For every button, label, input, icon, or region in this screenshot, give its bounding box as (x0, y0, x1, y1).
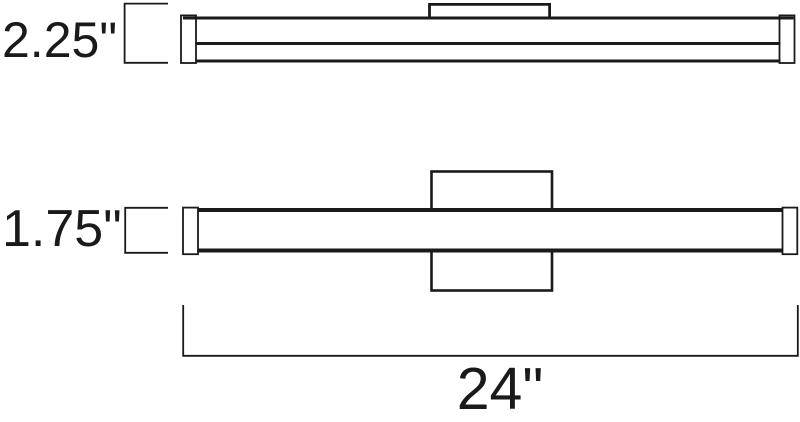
side-height-label: 2.25" (2, 15, 117, 65)
side-view-left-endcap (181, 15, 196, 63)
front-view-bar-body (197, 208, 783, 252)
front-height-dimension-bracket (125, 208, 168, 253)
side-view (181, 4, 795, 63)
front-view-right-endcap (783, 208, 798, 255)
side-view-mounting-tab (430, 4, 550, 18)
front-height-label: 1.75" (2, 203, 122, 255)
side-view-right-endcap (780, 15, 795, 63)
dimension-drawing-page: 2.25" 1.75" 24" (0, 0, 800, 422)
width-label: 24" (452, 360, 548, 419)
width-dimension-line (183, 305, 798, 356)
front-view-left-endcap (183, 208, 198, 255)
side-height-dimension-bracket (125, 4, 168, 63)
front-view (183, 172, 797, 291)
